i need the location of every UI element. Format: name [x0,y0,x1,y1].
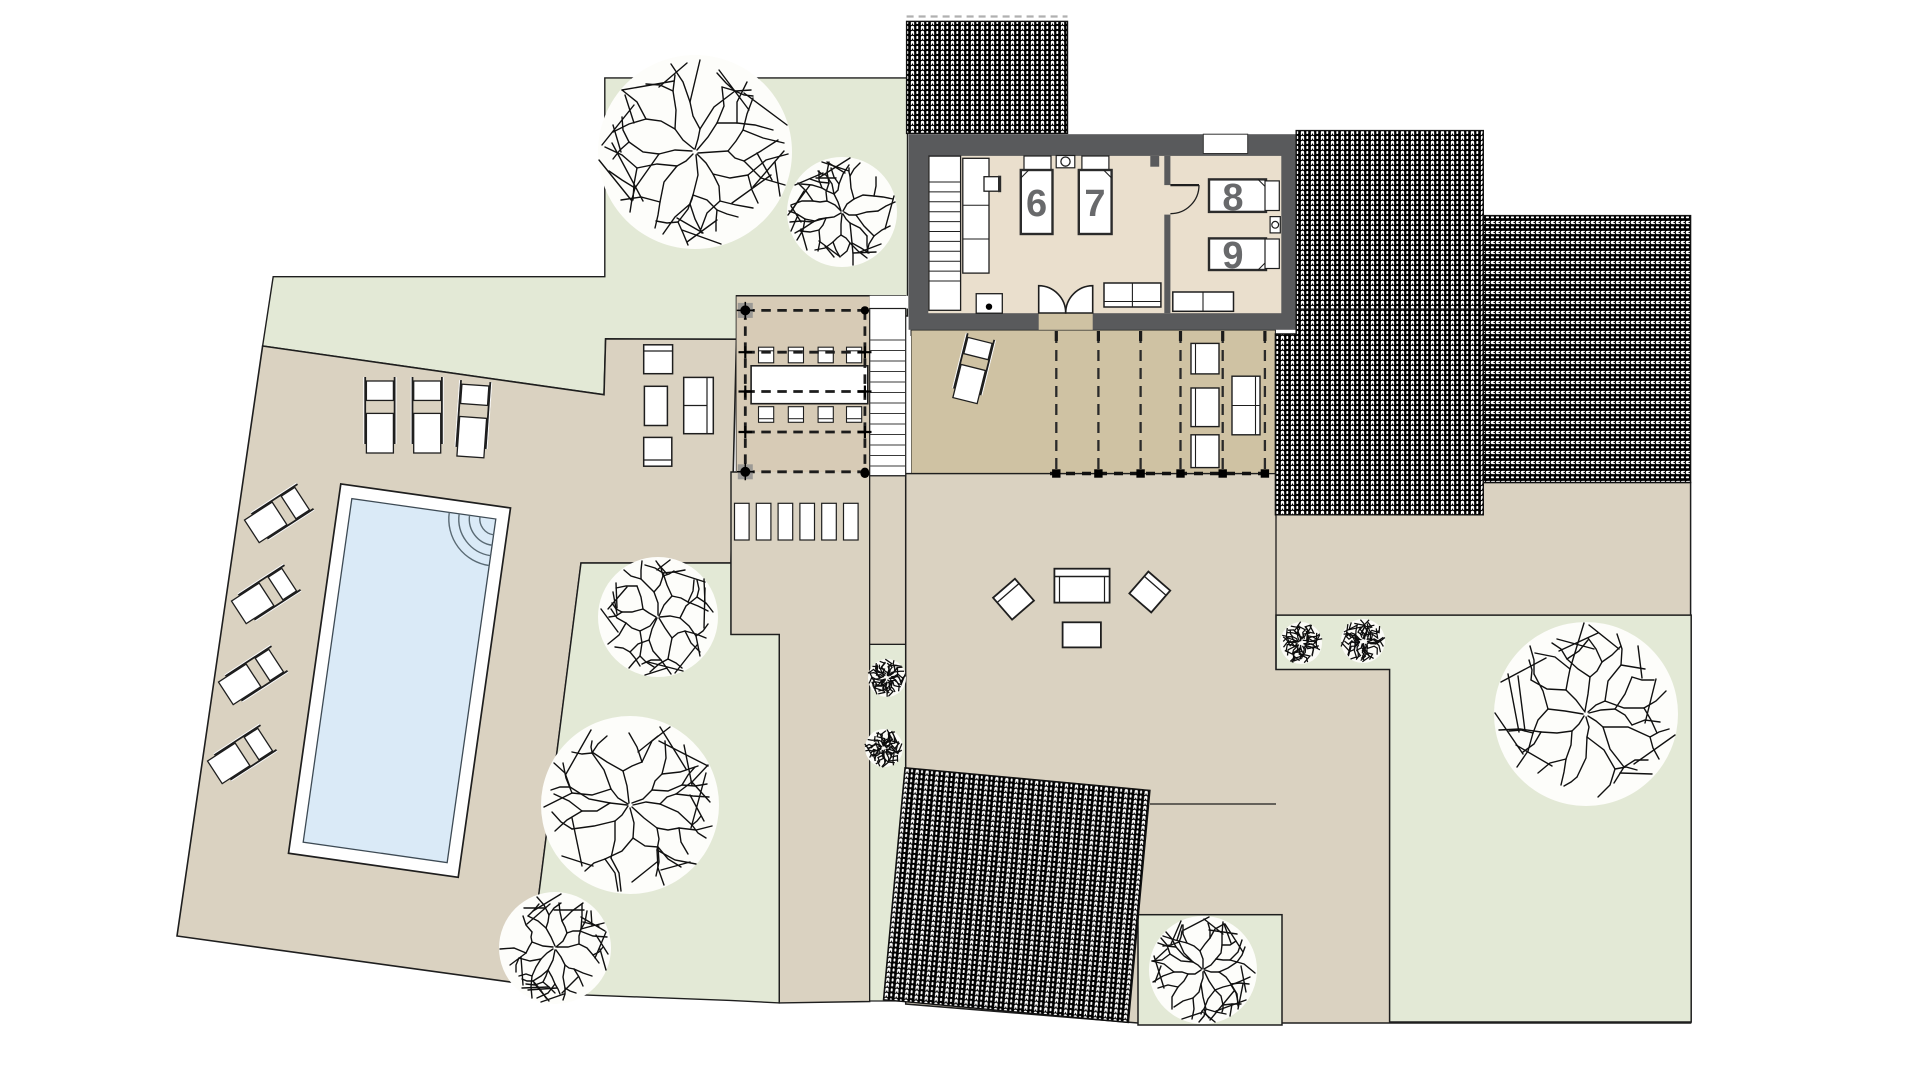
svg-text:6: 6 [1026,183,1047,225]
svg-text:8: 8 [1222,177,1243,219]
svg-text:7: 7 [1084,183,1105,225]
svg-text:9: 9 [1222,235,1243,277]
